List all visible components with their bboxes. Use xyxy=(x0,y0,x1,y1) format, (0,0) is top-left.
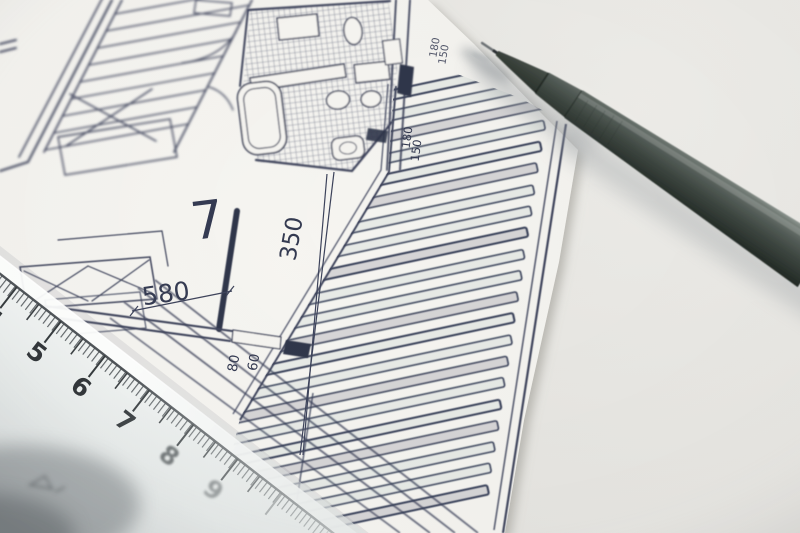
vignette-overlay xyxy=(0,0,800,533)
photo-scene: 7 580 350 80 60 180 150 180 150 xyxy=(0,0,800,533)
scene-canvas: 7 580 350 80 60 180 150 180 150 xyxy=(0,0,800,533)
